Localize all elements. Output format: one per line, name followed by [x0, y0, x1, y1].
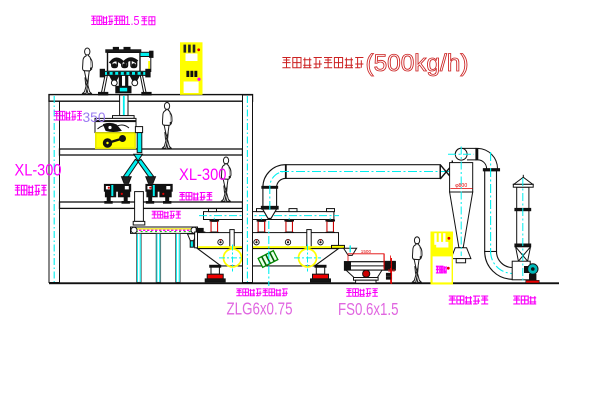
svg-text:1500: 1500	[361, 249, 372, 254]
svg-text:(500kg/h): (500kg/h)	[366, 50, 469, 77]
svg-text:XL-300: XL-300	[15, 161, 62, 180]
svg-text:ZLG6x0.75: ZLG6x0.75	[227, 299, 293, 319]
svg-text:FS0.6x1.5: FS0.6x1.5	[338, 299, 399, 319]
svg-text:1.5: 1.5	[125, 13, 140, 28]
svg-text:350: 350	[83, 109, 106, 125]
svg-text:XL-300: XL-300	[179, 165, 227, 184]
